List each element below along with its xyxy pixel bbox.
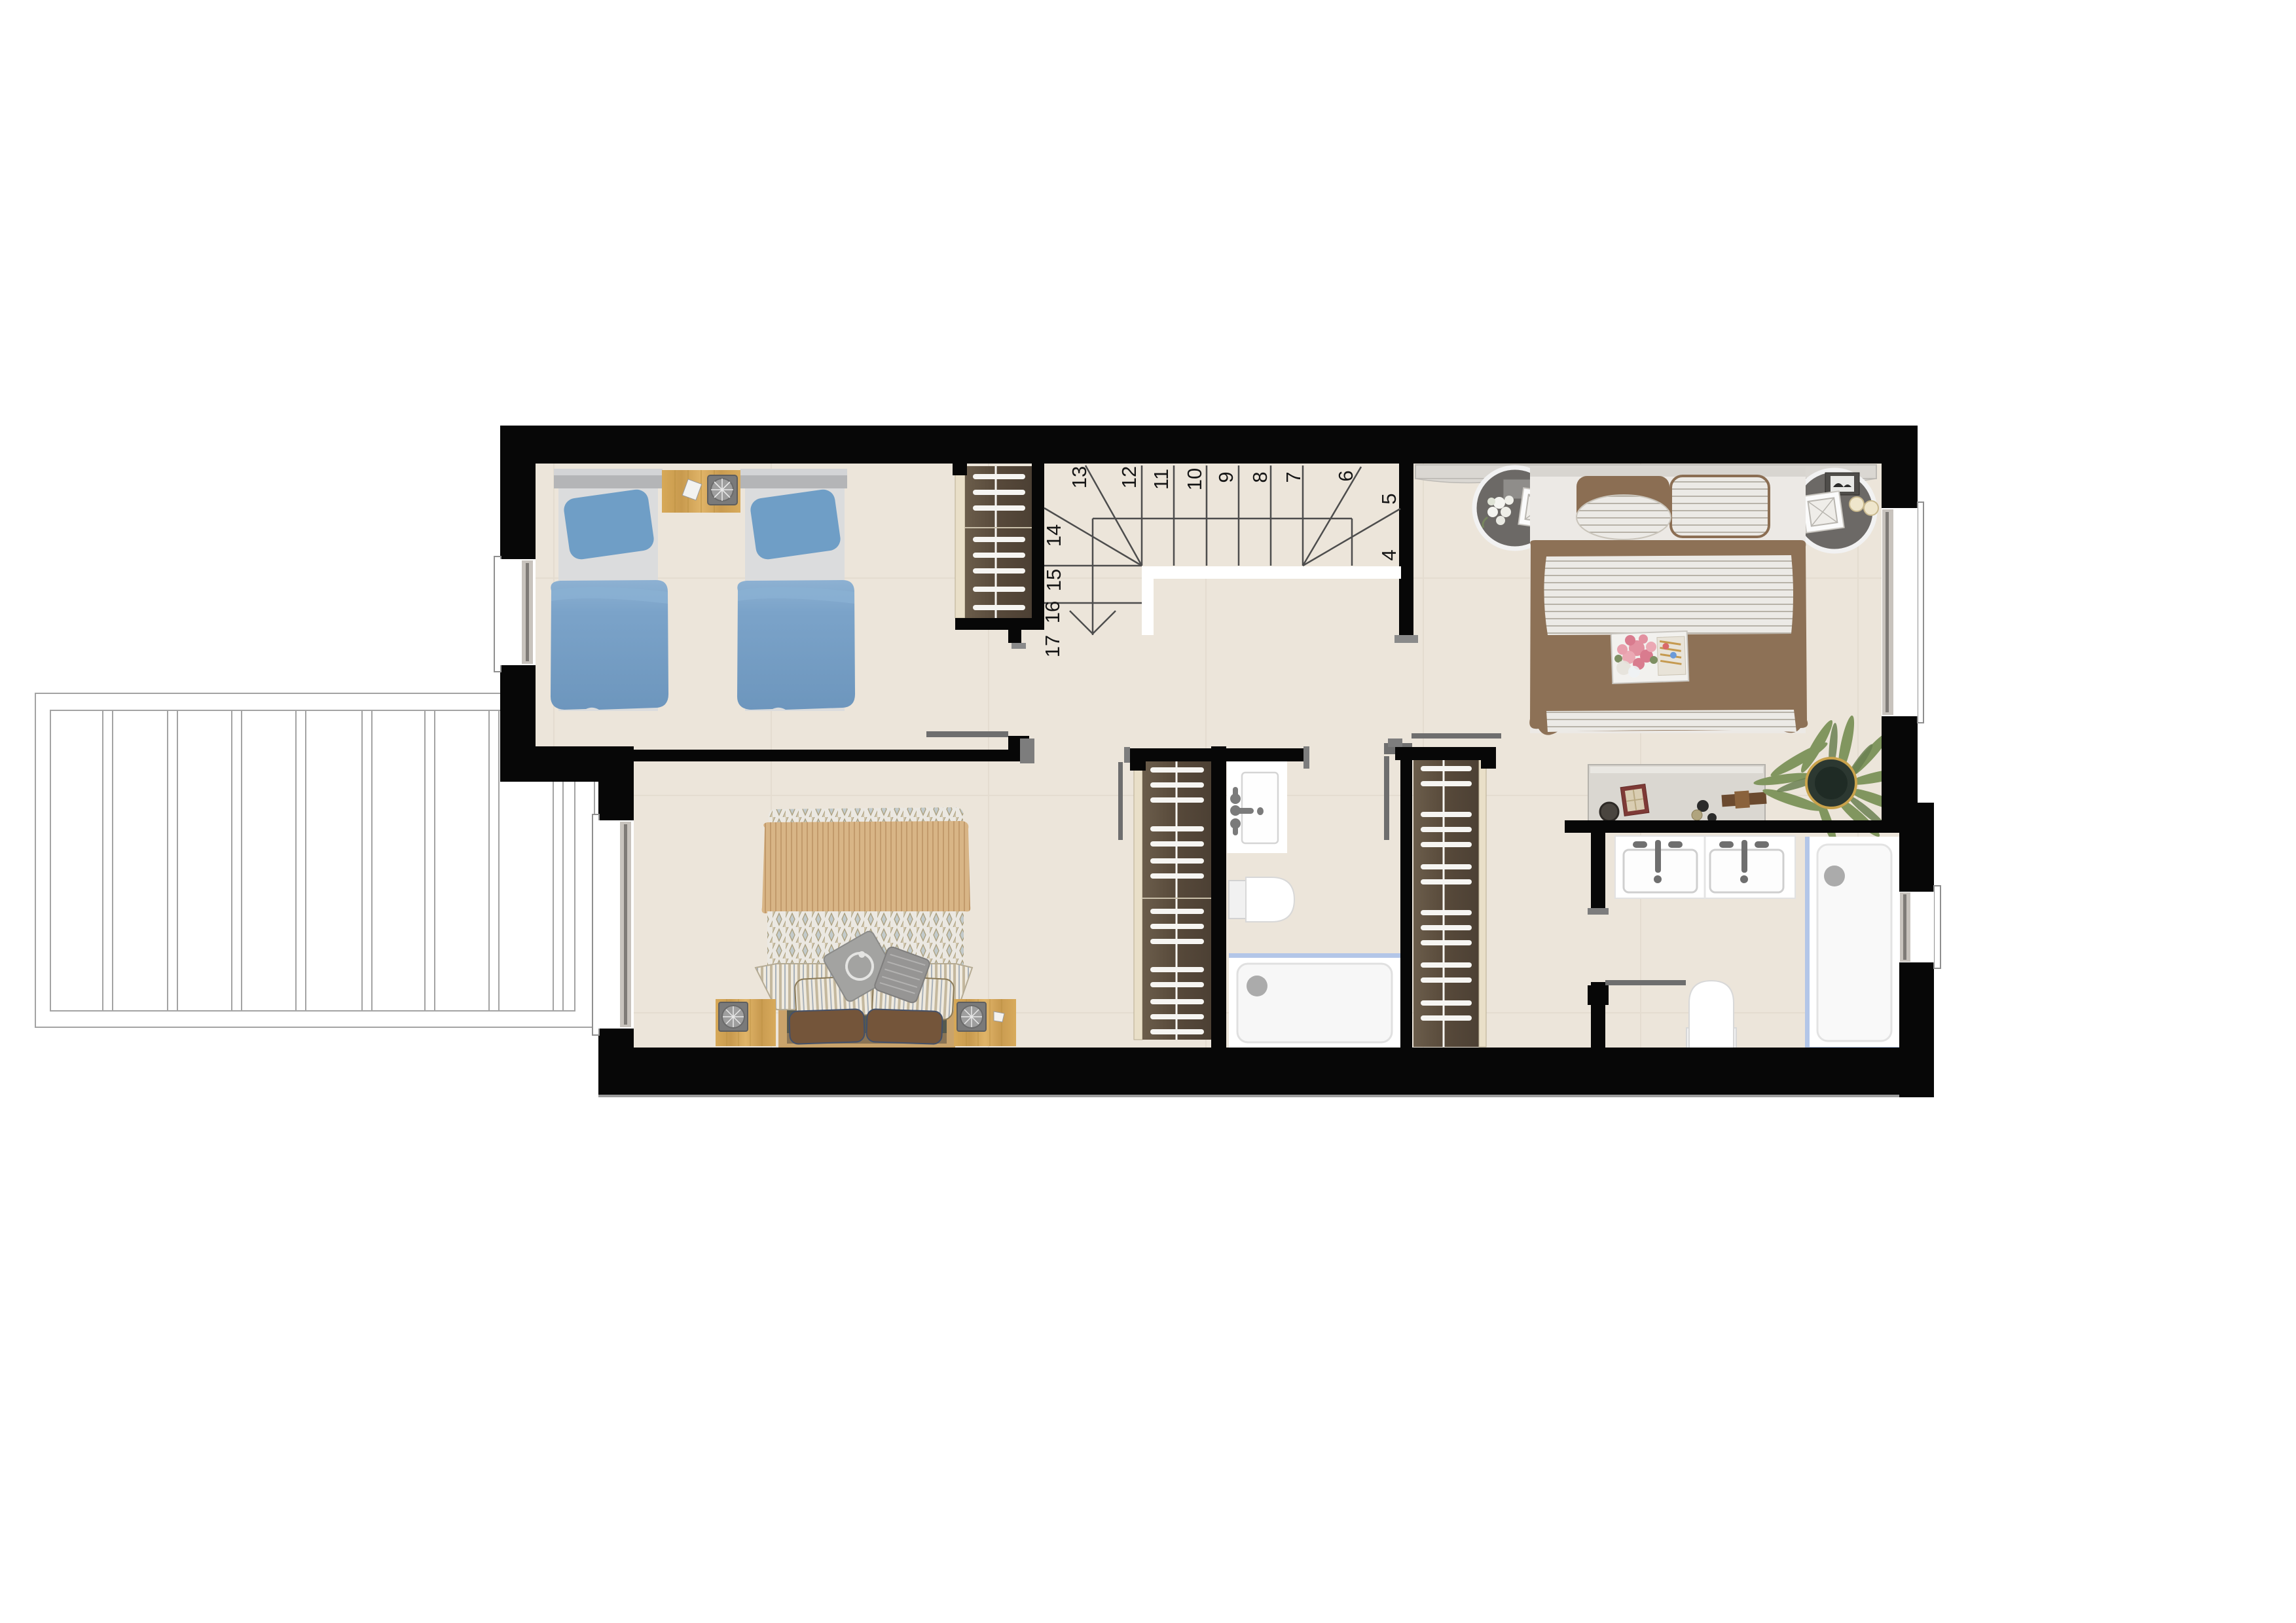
svg-text:12: 12 bbox=[1118, 466, 1140, 488]
svg-text:16: 16 bbox=[1041, 601, 1064, 623]
svg-text:9: 9 bbox=[1214, 471, 1237, 483]
svg-text:14: 14 bbox=[1042, 524, 1065, 547]
svg-text:8: 8 bbox=[1248, 471, 1271, 483]
svg-text:17: 17 bbox=[1041, 635, 1064, 657]
svg-text:13: 13 bbox=[1068, 466, 1091, 488]
svg-text:4: 4 bbox=[1377, 549, 1400, 560]
svg-text:15: 15 bbox=[1042, 569, 1065, 591]
svg-text:6: 6 bbox=[1334, 470, 1357, 481]
svg-text:10: 10 bbox=[1183, 468, 1206, 490]
svg-text:11: 11 bbox=[1150, 469, 1173, 490]
svg-text:7: 7 bbox=[1282, 471, 1305, 483]
svg-text:5: 5 bbox=[1377, 493, 1400, 504]
